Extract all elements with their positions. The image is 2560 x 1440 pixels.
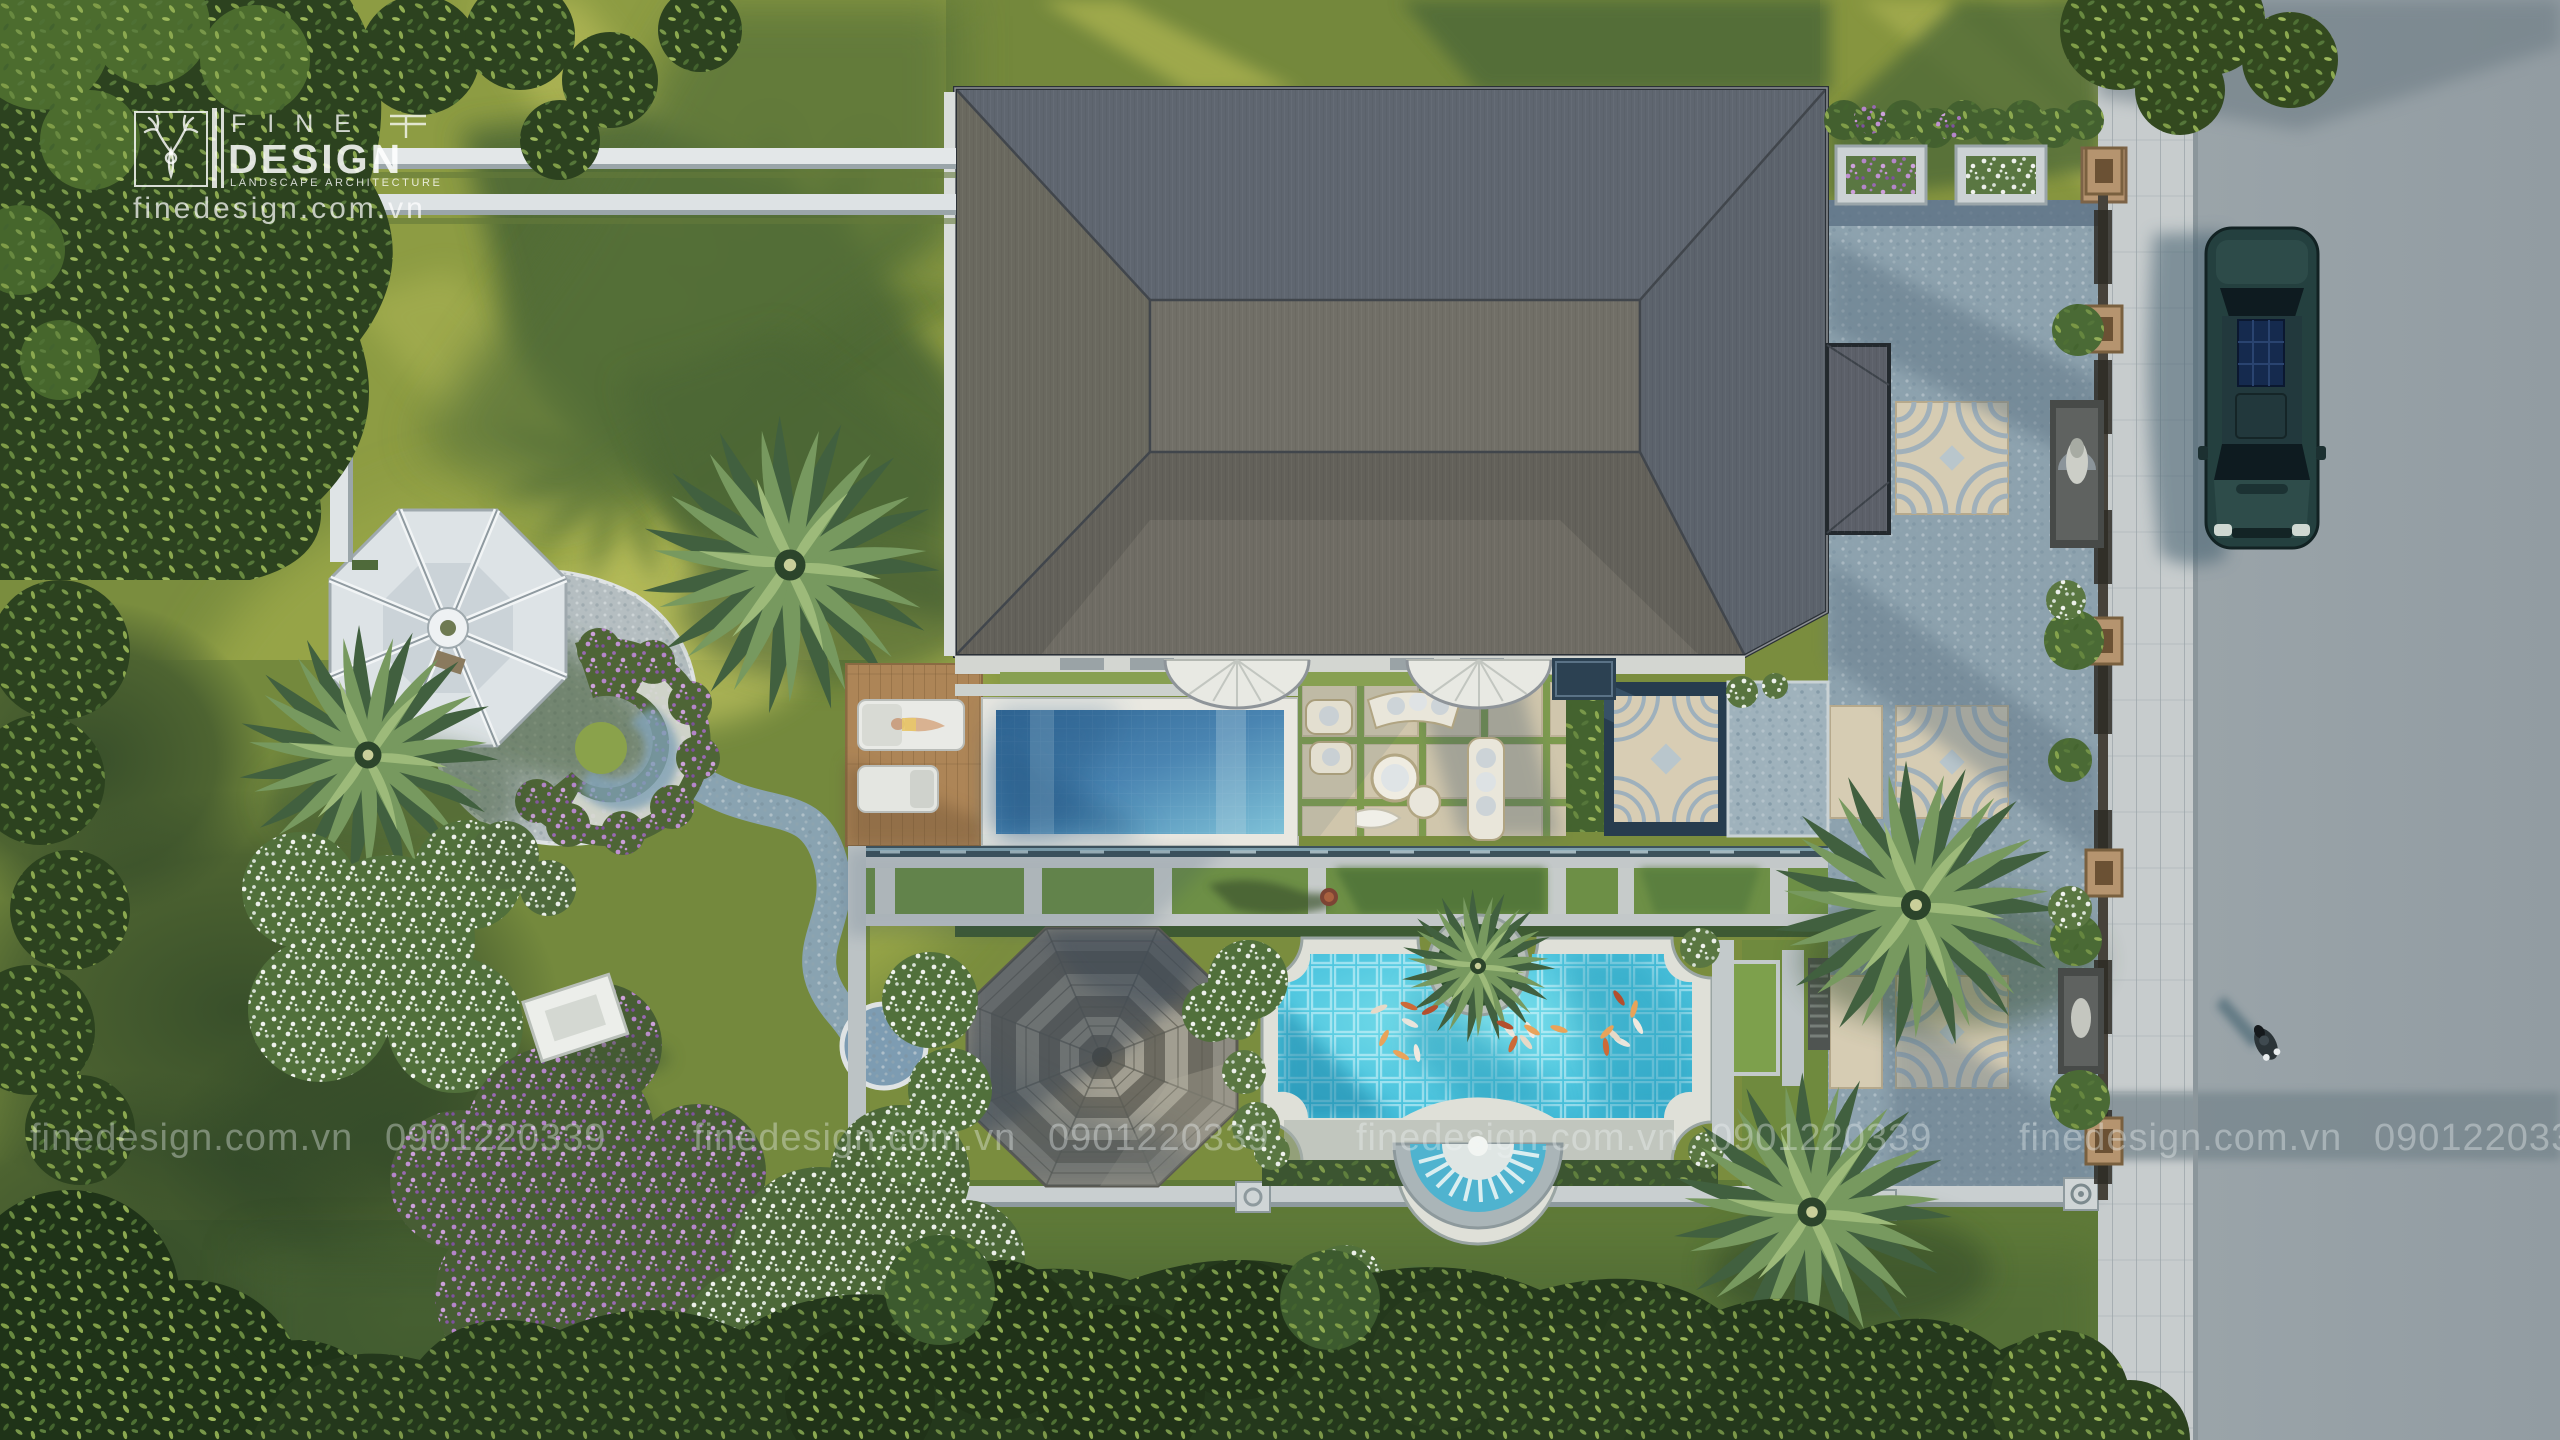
svg-text:finedesign.com.vn: finedesign.com.vn [30,1117,353,1159]
svg-text:0901220339: 0901220339 [1711,1117,1932,1159]
svg-text:0901220339: 0901220339 [2374,1117,2560,1159]
svg-text:finedesign.com.vn: finedesign.com.vn [2019,1117,2342,1159]
svg-text:FINE: FINE [231,110,372,138]
svg-text:0901220339: 0901220339 [1048,1117,1269,1159]
svg-text:DESIGN: DESIGN [228,136,403,182]
svg-text:finedesign.com.vn: finedesign.com.vn [133,192,426,225]
svg-text:0901220339: 0901220339 [385,1117,606,1159]
svg-text:finedesign.com.vn: finedesign.com.vn [1356,1117,1679,1159]
svg-text:LANDSCAPE ARCHITECTURE: LANDSCAPE ARCHITECTURE [230,177,442,189]
svg-text:finedesign.com.vn: finedesign.com.vn [693,1117,1016,1159]
